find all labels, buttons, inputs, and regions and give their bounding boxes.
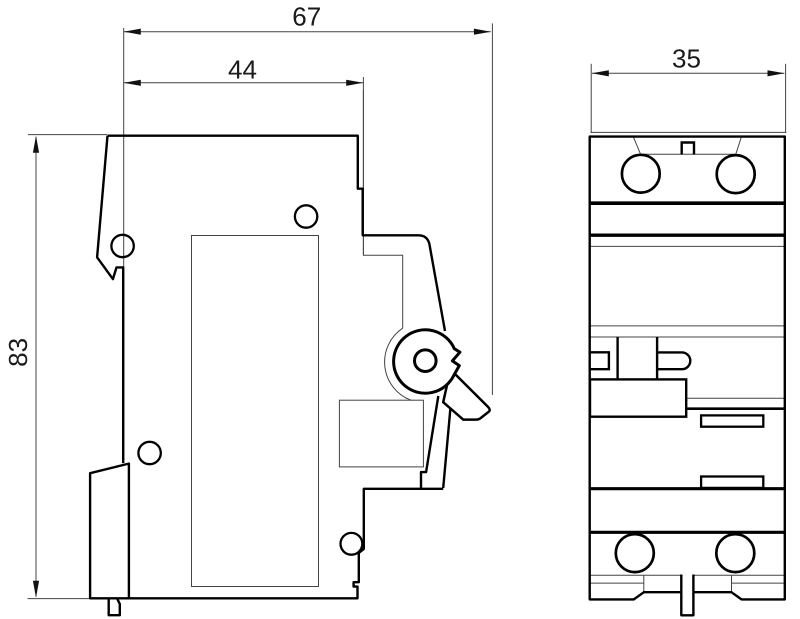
svg-text:67: 67 bbox=[292, 1, 321, 31]
svg-text:44: 44 bbox=[228, 54, 257, 84]
svg-text:35: 35 bbox=[672, 44, 701, 74]
svg-text:83: 83 bbox=[3, 338, 33, 367]
